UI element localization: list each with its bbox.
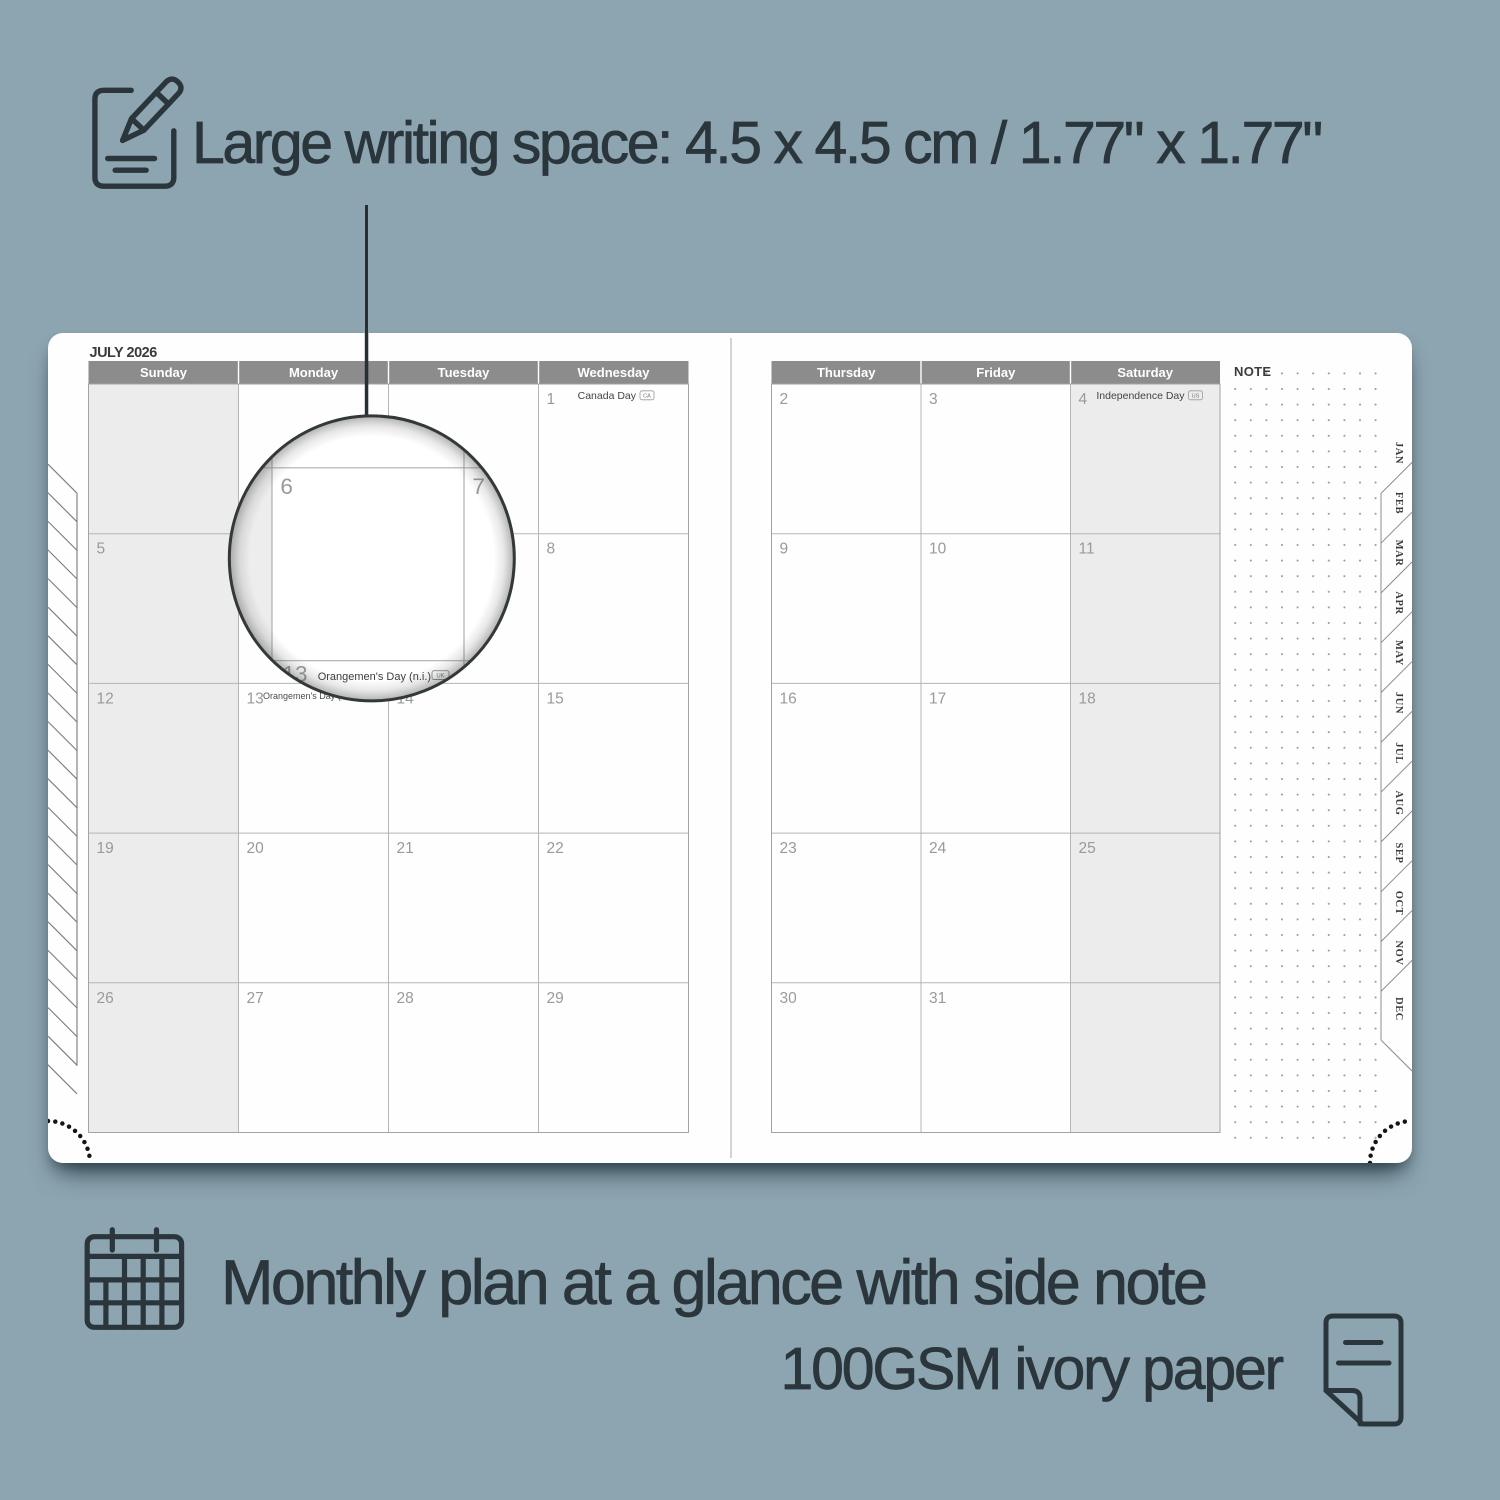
svg-text:8: 8 <box>547 541 556 558</box>
svg-text:Friday: Friday <box>976 365 1016 380</box>
svg-text:30: 30 <box>780 990 798 1007</box>
svg-text:28: 28 <box>397 990 414 1007</box>
svg-text:DEC: DEC <box>1393 997 1404 1021</box>
svg-text:23: 23 <box>780 840 797 857</box>
svg-text:Wednesday: Wednesday <box>577 365 650 380</box>
svg-text:MAY: MAY <box>1393 640 1404 666</box>
svg-text:3: 3 <box>929 391 938 408</box>
svg-text:1: 1 <box>547 391 556 408</box>
svg-text:2: 2 <box>780 391 789 408</box>
svg-text:16: 16 <box>780 690 797 707</box>
svg-text:JUN: JUN <box>1393 692 1404 714</box>
svg-text:31: 31 <box>929 990 946 1007</box>
svg-text:CA: CA <box>643 393 651 399</box>
svg-text:25: 25 <box>1079 840 1096 857</box>
svg-text:FEB: FEB <box>1393 492 1404 514</box>
svg-text:10: 10 <box>929 541 947 558</box>
svg-text:JAN: JAN <box>1393 442 1404 464</box>
svg-text:SEP: SEP <box>1393 842 1404 863</box>
svg-text:Thursday: Thursday <box>817 365 876 380</box>
svg-text:24: 24 <box>929 840 947 857</box>
svg-text:JULY 2026: JULY 2026 <box>90 345 158 361</box>
svg-text:Canada Day: Canada Day <box>578 390 637 402</box>
svg-text:17: 17 <box>929 690 946 707</box>
svg-text:11: 11 <box>1079 541 1095 558</box>
svg-text:Saturday: Saturday <box>1117 365 1173 380</box>
svg-text:12: 12 <box>97 690 114 707</box>
svg-text:JUL: JUL <box>1393 742 1404 764</box>
svg-text:13: 13 <box>247 690 264 707</box>
svg-text:Tuesday: Tuesday <box>438 365 491 380</box>
svg-text:9: 9 <box>780 541 789 558</box>
svg-text:22: 22 <box>547 840 564 857</box>
svg-text:Sunday: Sunday <box>140 365 188 380</box>
svg-text:26: 26 <box>97 990 114 1007</box>
svg-text:NOTE: NOTE <box>1234 364 1271 379</box>
svg-text:18: 18 <box>1079 690 1096 707</box>
svg-text:MAR: MAR <box>1393 540 1404 567</box>
svg-text:19: 19 <box>97 840 114 857</box>
svg-text:AUG: AUG <box>1393 790 1404 815</box>
svg-text:5: 5 <box>97 541 106 558</box>
svg-text:OCT: OCT <box>1393 891 1404 916</box>
svg-text:21: 21 <box>397 840 414 857</box>
svg-text:15: 15 <box>547 690 564 707</box>
svg-text:29: 29 <box>547 990 564 1007</box>
svg-text:27: 27 <box>247 990 264 1007</box>
svg-text:US: US <box>1192 393 1200 399</box>
svg-text:4: 4 <box>1079 391 1088 408</box>
svg-text:Monday: Monday <box>289 365 339 380</box>
svg-text:NOV: NOV <box>1393 940 1404 965</box>
svg-text:20: 20 <box>247 840 265 857</box>
svg-text:APR: APR <box>1393 591 1404 614</box>
svg-text:Independence Day: Independence Day <box>1096 390 1185 402</box>
